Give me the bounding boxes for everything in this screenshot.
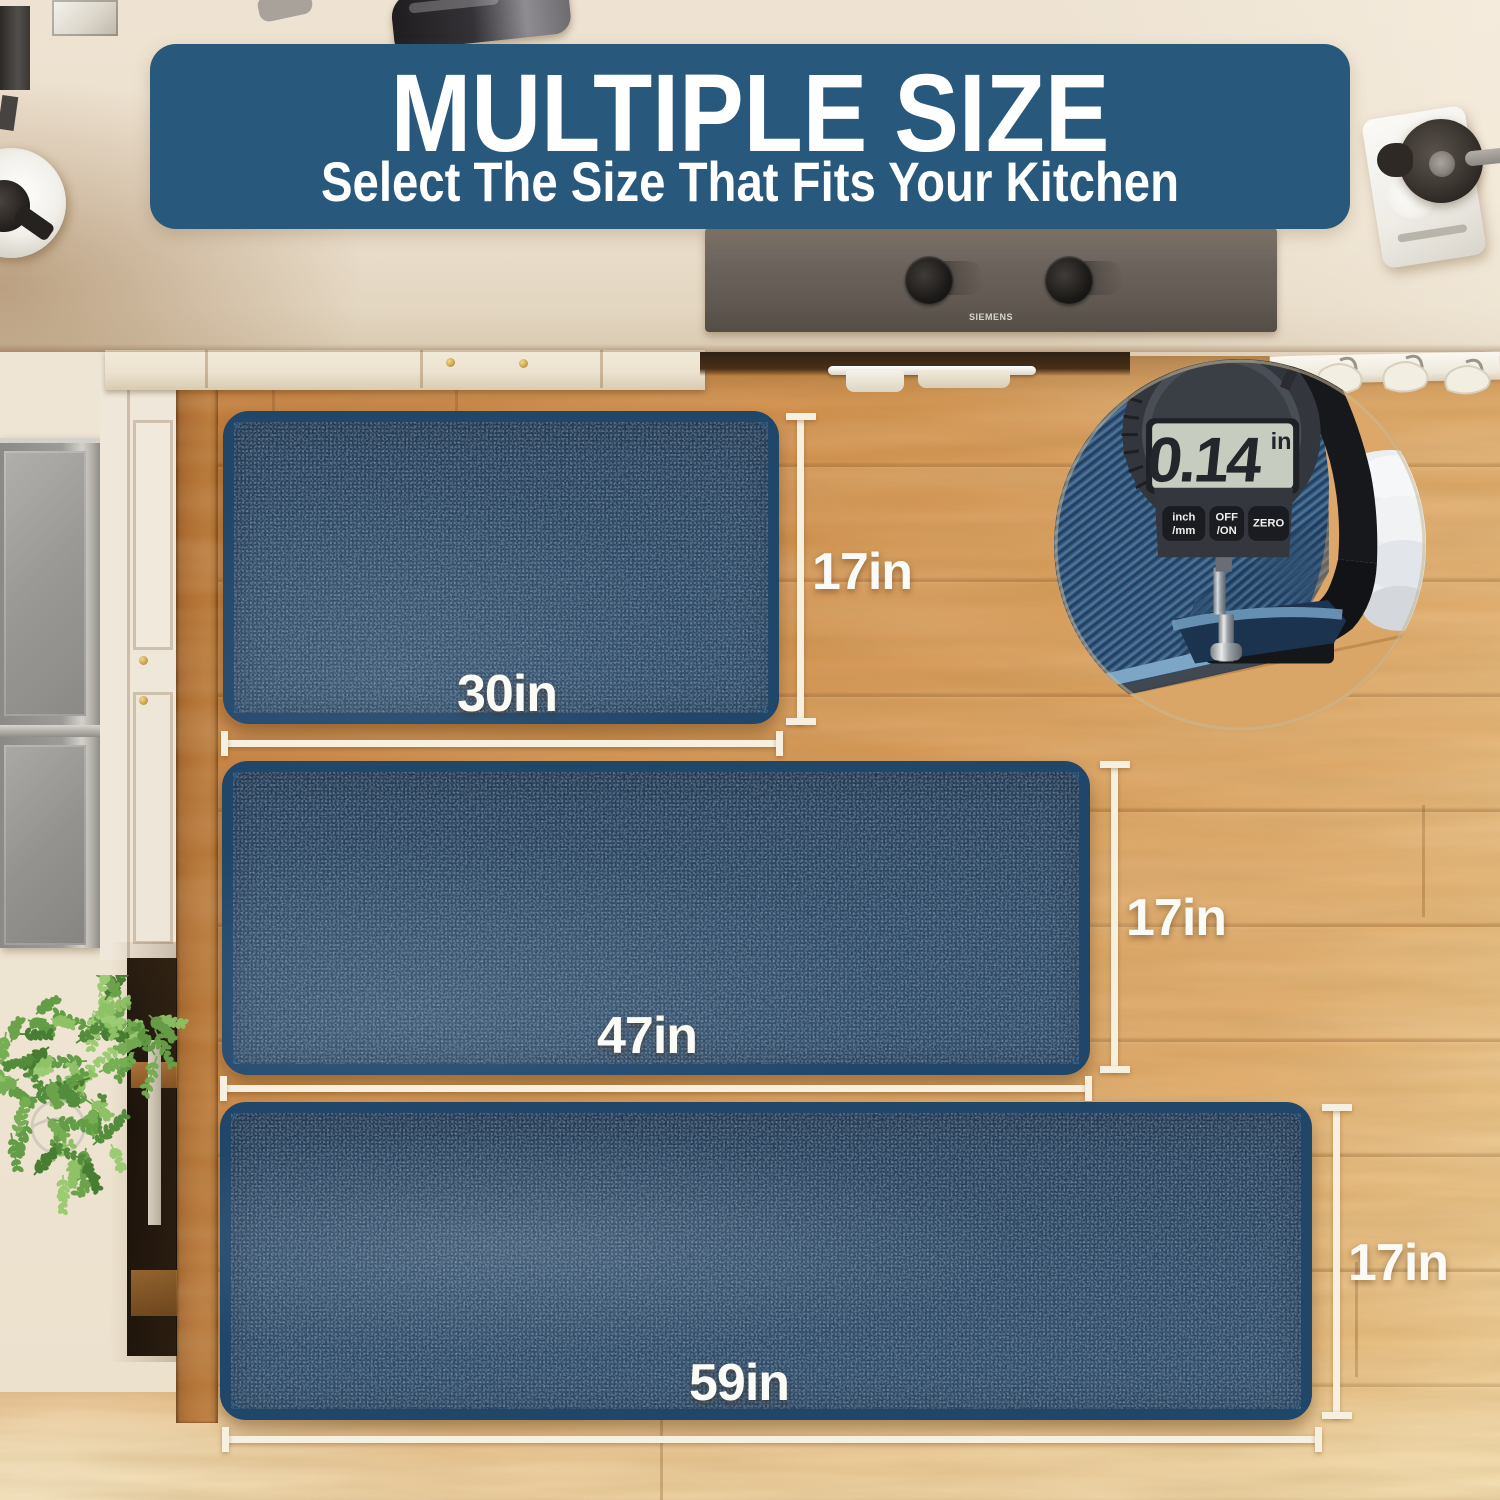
svg-text:/ON: /ON — [1217, 525, 1237, 537]
svg-text:inch: inch — [1172, 511, 1195, 523]
svg-text:OFF: OFF — [1215, 511, 1238, 523]
svg-text:0.14: 0.14 — [1144, 425, 1266, 496]
svg-text:ZERO: ZERO — [1253, 518, 1284, 530]
svg-text:/mm: /mm — [1172, 525, 1195, 537]
svg-text:in: in — [1271, 428, 1292, 454]
